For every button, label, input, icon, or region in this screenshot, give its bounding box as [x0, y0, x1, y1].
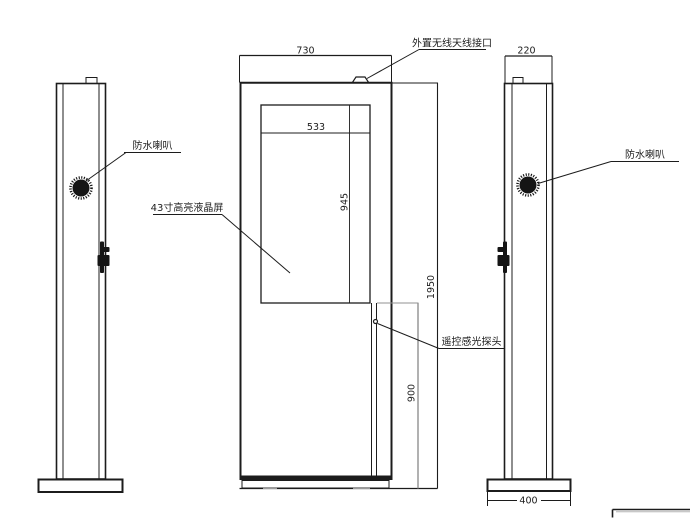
- antenna-callout: [367, 50, 486, 79]
- front-view: [153, 50, 505, 489]
- left-base-pedestal: [39, 480, 123, 493]
- left-body-outline: [57, 84, 106, 480]
- light-sensor-label: 遥控感光探头: [442, 335, 502, 348]
- lcd-screen-label: 43寸高亮液晶屏: [151, 201, 224, 214]
- drawing-canvas: 防水喇叭: [0, 0, 690, 519]
- kiosk-technical-drawing: 防水喇叭: [0, 0, 690, 519]
- right-side-view: [488, 56, 680, 506]
- dim-side-depth: 220: [517, 46, 535, 57]
- dim-total-height: 1950: [426, 275, 437, 299]
- dim-220-lines: [505, 56, 552, 83]
- dim-730-lines: [240, 56, 392, 83]
- lcd-screen: [261, 105, 370, 303]
- dim-lower-height: 900: [407, 384, 418, 402]
- left-side-view: [39, 78, 182, 493]
- antenna-port-label: 外置无线天线接口: [412, 37, 492, 50]
- speaker-right-callout: [538, 162, 679, 184]
- right-base-pedestal: [488, 480, 571, 492]
- dim-cabinet-width: 730: [296, 46, 314, 57]
- dim-screen-height: 945: [340, 193, 351, 211]
- light-sensor-dot: [374, 320, 378, 324]
- right-antenna-stub: [513, 78, 523, 84]
- speaker-right-label: 防水喇叭: [625, 148, 665, 161]
- dim-screen-width: 533: [307, 122, 325, 133]
- front-plinth: [242, 481, 389, 489]
- title-block-corner: [613, 510, 690, 518]
- dim-base-depth: 400: [519, 496, 537, 507]
- antenna-connector: [353, 77, 369, 82]
- left-antenna-stub: [86, 78, 97, 84]
- speaker-left-label: 防水喇叭: [133, 139, 173, 152]
- front-bottom-band: [240, 476, 393, 481]
